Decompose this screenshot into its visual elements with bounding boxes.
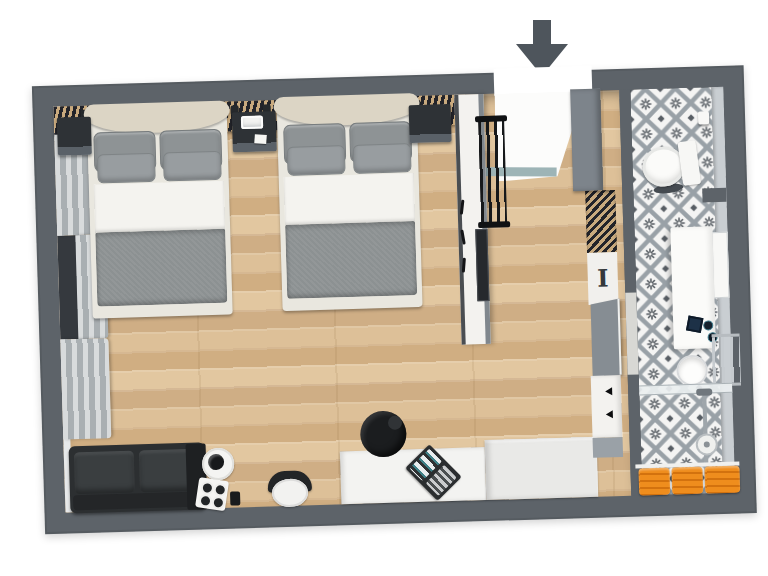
espresso-cup <box>200 481 215 496</box>
nightstand-right <box>409 104 452 143</box>
note-card <box>254 134 267 144</box>
orange-towel <box>704 466 740 494</box>
privacy-wall-stub <box>702 188 726 203</box>
towel-ladder <box>712 333 742 386</box>
pillow-set <box>93 131 156 183</box>
coffee-grinder <box>230 491 240 505</box>
pillow-set <box>349 121 412 173</box>
pillow <box>97 153 156 184</box>
nightstand-left <box>57 117 92 156</box>
bed-sheet <box>284 173 415 225</box>
pillow-set <box>159 129 222 181</box>
espresso-tray <box>195 477 229 511</box>
pillow-set <box>283 123 346 175</box>
soap-dish <box>686 316 703 333</box>
ironing-board-panel: I <box>587 252 619 305</box>
floor-plan: I <box>0 0 768 576</box>
toilet <box>639 136 703 195</box>
toilet-paper-roll <box>698 111 709 124</box>
pillow <box>287 145 346 176</box>
ironing-board-glyph: I <box>597 266 609 290</box>
sideboard <box>485 437 599 500</box>
curtain <box>60 338 111 439</box>
bed-1 <box>87 105 233 319</box>
shower-head <box>696 388 712 395</box>
orange-towel <box>638 468 670 496</box>
bathroom-door-open <box>591 298 622 380</box>
bed-sheet <box>94 181 225 233</box>
espresso-cup <box>211 495 226 510</box>
bed-duvet <box>95 229 227 307</box>
espresso-cup <box>213 482 228 497</box>
closet-handle <box>606 410 613 418</box>
pillow <box>163 151 222 182</box>
wardrobe-cabinet <box>570 88 603 191</box>
orange-towel <box>671 467 703 495</box>
full-length-mirror <box>475 229 489 301</box>
closet-handle <box>605 387 612 395</box>
closet-doors <box>591 375 623 438</box>
sofa-cushion <box>74 450 135 494</box>
bed-2 <box>276 97 422 311</box>
slatted-shelf <box>585 190 617 253</box>
pillow <box>353 143 412 174</box>
luggage-rack <box>478 117 507 226</box>
espresso-cup <box>198 493 213 508</box>
telephone <box>241 116 263 130</box>
floor-plan-canvas: I <box>0 0 768 576</box>
toilet-tank <box>677 140 701 186</box>
sofa-backrest <box>73 491 203 510</box>
closet-base <box>593 437 624 458</box>
bed-duvet <box>285 221 417 299</box>
